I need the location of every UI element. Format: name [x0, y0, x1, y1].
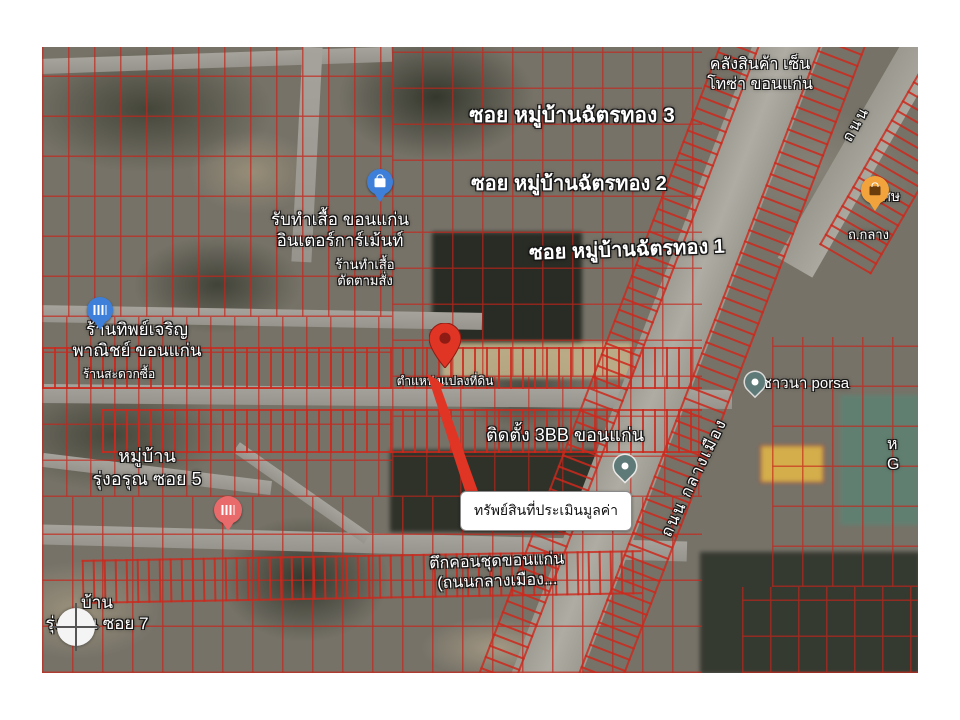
satellite-map-view[interactable]: คลังสินค้า เซ็น โทซ่า ขอนแก่น ซอย หมู่บ้…	[42, 47, 918, 673]
parcel-grid	[742, 587, 918, 673]
label-condo: ตึกคอนชุดขอนแก่น (ถนนกลางเมือง...	[376, 548, 617, 596]
label-3bb: ติดตั้ง 3BB ขอนแก่น	[420, 424, 710, 447]
label-convenience-store: ร้านสะดวกซื้อ	[44, 367, 194, 382]
poi-marker-orange-icon[interactable]	[861, 176, 889, 204]
property-pin-icon[interactable]	[429, 323, 461, 368]
shop-awning-icon	[222, 505, 235, 515]
shopping-marker-blue-icon[interactable]	[87, 297, 113, 323]
label-parcel-position: ตำแหน่งแปลงที่ดิน	[355, 374, 535, 389]
marker-tail	[94, 321, 106, 336]
poi-glyph-icon	[870, 186, 881, 195]
label-shirt-shop-small: ร้านทำเสื้อ ตัดตามสั่ง	[290, 257, 440, 290]
marker-tail	[869, 202, 881, 217]
marker-tail	[374, 193, 386, 208]
label-soi-chattong-3: ซอย หมู่บ้านฉัตรทอง 3	[422, 103, 722, 129]
page: คลังสินค้า เซ็น โทซ่า ขอนแก่น ซอย หมู่บ้…	[0, 0, 960, 720]
label-village-soi5: หมู่บ้าน รุ่งอรุณ ซอย 5	[67, 445, 227, 490]
shopping-marker-pink-icon[interactable]	[214, 496, 242, 524]
appraisal-callout-text: ทรัพย์สินที่ประเมินมูลค่า	[474, 500, 618, 522]
label-warehouse: คลังสินค้า เซ็น โทซ่า ขอนแก่น	[640, 55, 880, 95]
shopping-marker-blue-icon[interactable]	[367, 169, 393, 195]
crosshair-target-icon	[57, 608, 95, 646]
label-porsa: บ.ชาวนา porsa	[748, 375, 918, 394]
shop-awning-icon	[94, 305, 107, 315]
marker-tail	[222, 522, 234, 537]
label-soi-chattong-2: ซอย หมู่บ้านฉัตรทอง 2	[424, 172, 714, 197]
shopping-bag-icon	[375, 178, 386, 187]
label-road-short: ถ.กลาง	[848, 227, 918, 243]
poi-dot	[750, 377, 760, 387]
label-edge-partial: ห G	[887, 435, 918, 475]
poi-dot	[620, 461, 630, 471]
label-shirt-shop: รับทำเสื้อ ขอนแก่น อินเตอร์การ์เม้นท์	[200, 209, 480, 252]
appraisal-callout: ทรัพย์สินที่ประเมินมูลค่า	[460, 491, 632, 531]
label-tip-charoen: ร้านทิพย์เจริญ พาณิชย์ ขอนแก่น	[42, 319, 252, 362]
